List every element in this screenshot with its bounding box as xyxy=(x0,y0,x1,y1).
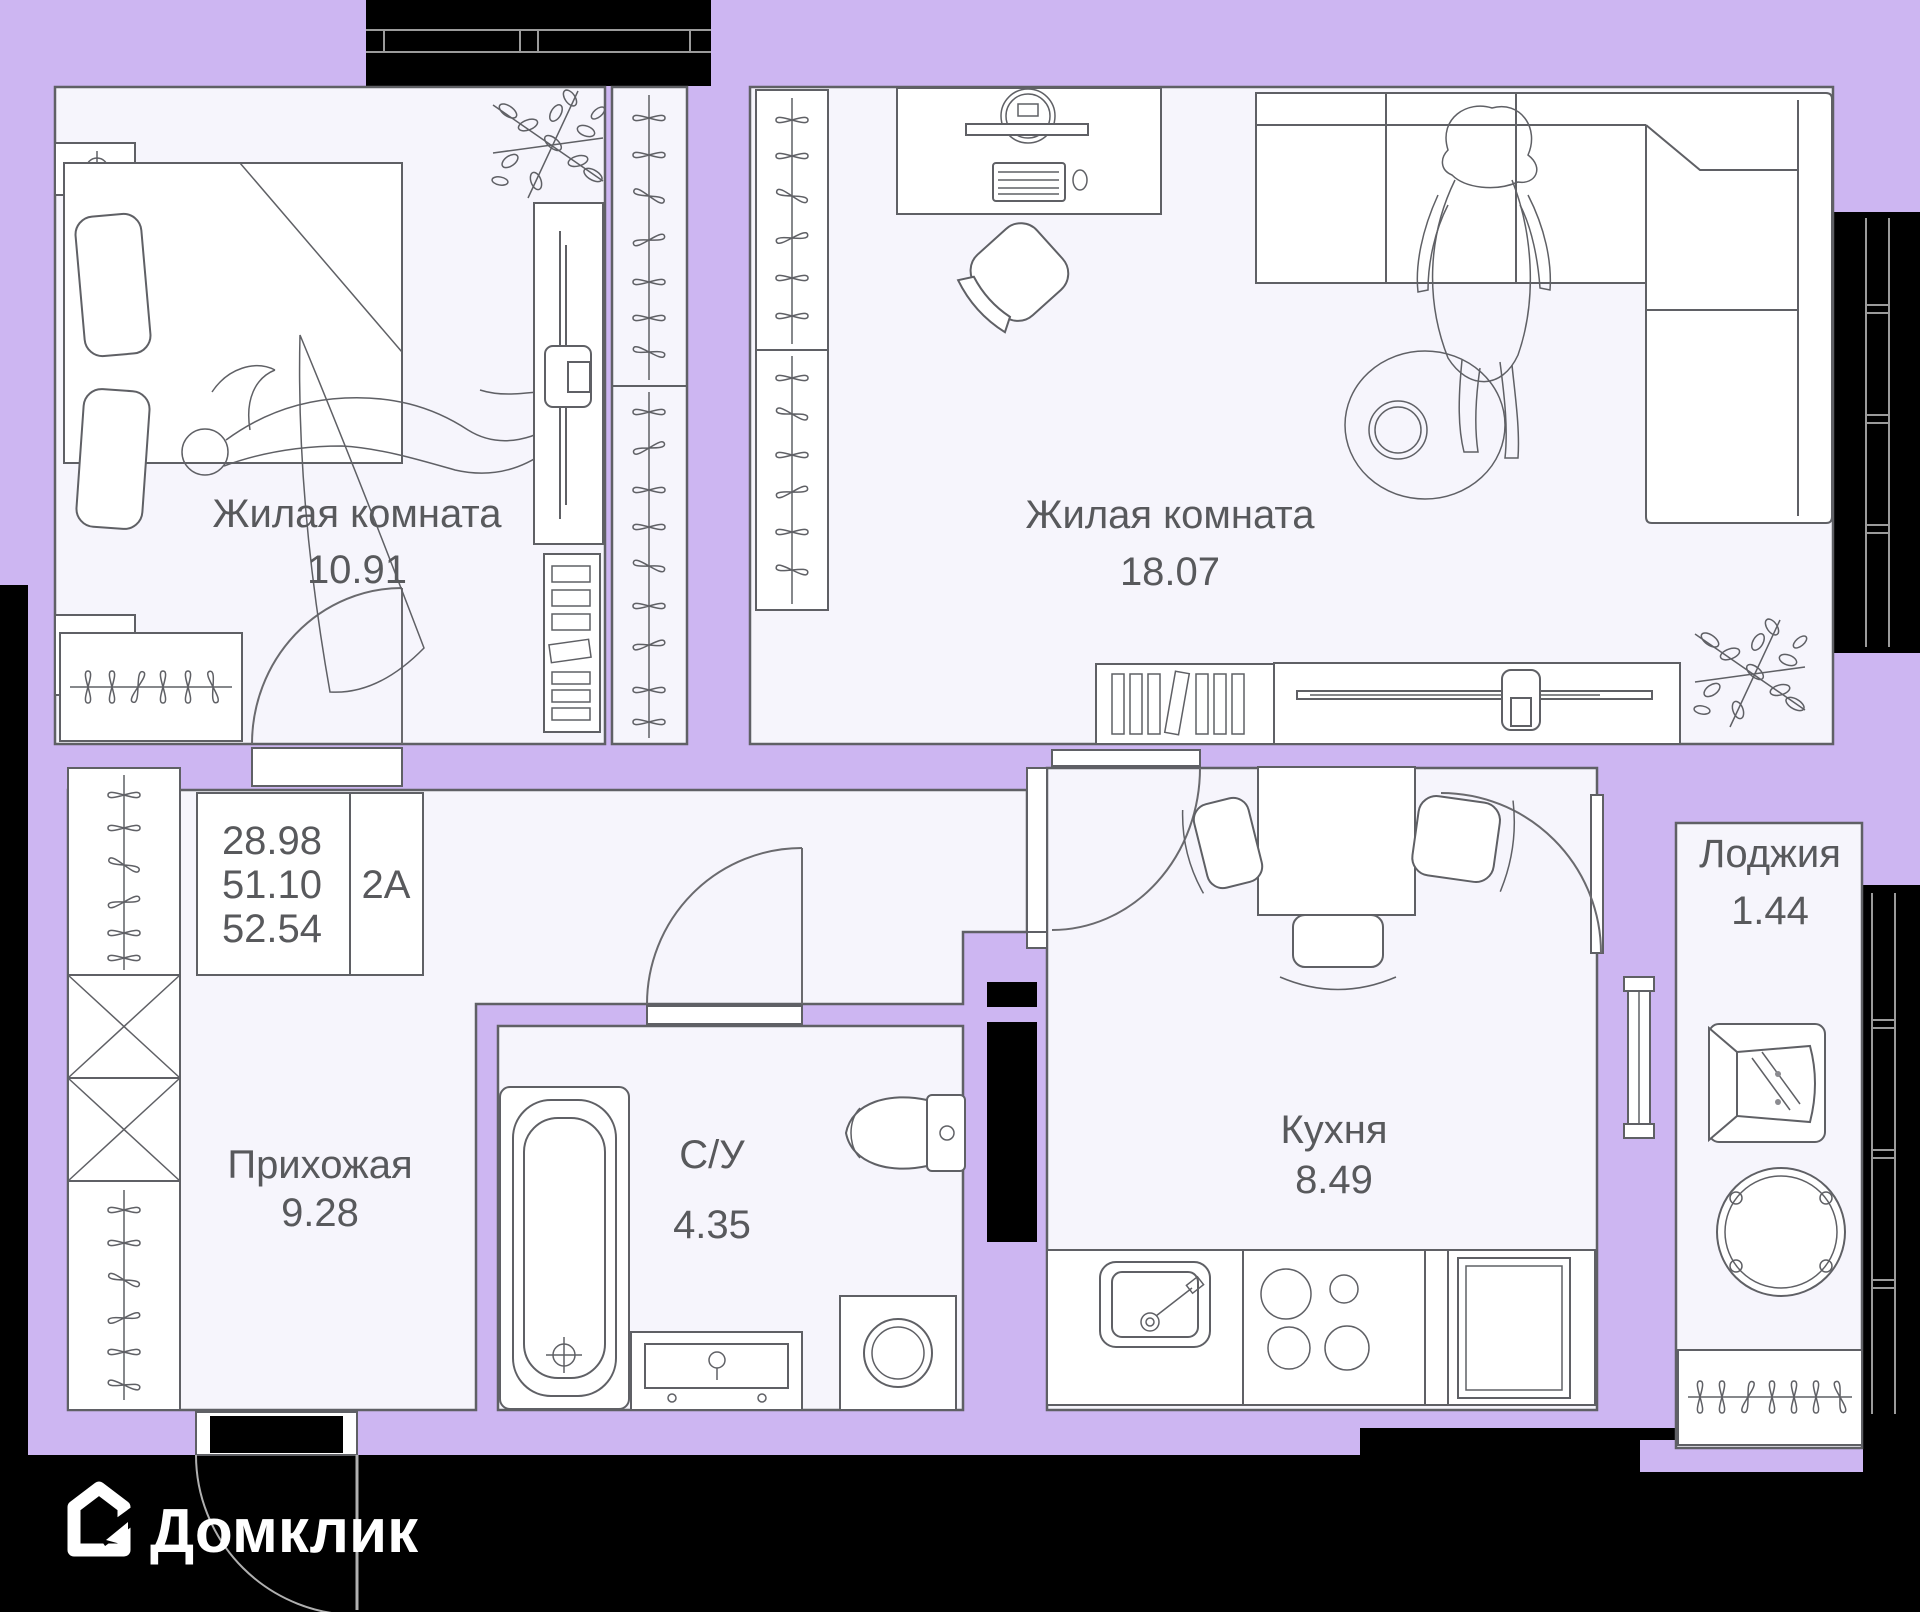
armchair-icon xyxy=(1709,1024,1825,1142)
loggia-door-leaf xyxy=(1591,795,1603,953)
fridge-icon xyxy=(1458,1258,1570,1398)
room-area-loggia: 1.44 xyxy=(1731,889,1809,933)
room-area-living-2: 18.07 xyxy=(1120,550,1220,594)
unit-type: 2А xyxy=(362,863,411,907)
room-area-bathroom: 4.35 xyxy=(673,1203,751,1247)
bathroom-door-gap xyxy=(647,1006,802,1024)
floorplan-canvas: 28.98 51.10 52.54 2А xyxy=(0,0,1920,1612)
sink-icon xyxy=(1100,1262,1210,1347)
wardrobe-icon xyxy=(60,633,242,741)
room-area-hallway: 9.28 xyxy=(281,1191,359,1235)
round-table-icon xyxy=(1717,1168,1845,1296)
kitchen-table-icon xyxy=(1258,767,1415,915)
room1-door-gap xyxy=(252,748,402,786)
room-label-bathroom: С/У xyxy=(679,1133,745,1177)
drying-rack-icon xyxy=(1678,1350,1862,1445)
room-area-kitchen: 8.49 xyxy=(1295,1158,1373,1202)
domclick-logo-text: Домклик xyxy=(150,1497,419,1566)
kitchen-door-leaf xyxy=(1052,750,1200,766)
room-label-hallway: Прихожая xyxy=(227,1143,412,1187)
floorplan-page: 28.98 51.10 52.54 2А xyxy=(0,0,1920,1612)
tv-console-icon xyxy=(1274,663,1680,744)
kitchen-loggia-window xyxy=(1624,977,1654,1138)
toilet-icon xyxy=(846,1095,965,1171)
desk-icon xyxy=(897,88,1161,214)
unit-info-box: 28.98 51.10 52.54 2А xyxy=(197,793,423,975)
room2-wardrobe-icon xyxy=(756,90,828,610)
room-label-living-2: Жилая комната xyxy=(1026,493,1316,537)
shelf-icon xyxy=(544,554,600,732)
washing-machine-icon xyxy=(840,1296,956,1410)
room-label-loggia: Лоджия xyxy=(1699,832,1841,876)
tv-unit-icon xyxy=(534,203,603,544)
area-total: 51.10 xyxy=(222,863,322,907)
kitchen-partition-wall xyxy=(1027,768,1047,948)
area-living: 28.98 xyxy=(222,819,322,863)
area-total-with-loggia: 52.54 xyxy=(222,907,322,951)
sink-vanity-icon xyxy=(631,1332,802,1410)
room-label-living-1: Жилая комната xyxy=(213,492,503,536)
kitchen-counter-icon xyxy=(1047,1250,1595,1405)
bookshelf-icon xyxy=(1096,664,1274,744)
room-area-living-1: 10.91 xyxy=(307,548,407,592)
room-label-kitchen: Кухня xyxy=(1280,1108,1387,1152)
bathtub-icon xyxy=(500,1087,629,1409)
